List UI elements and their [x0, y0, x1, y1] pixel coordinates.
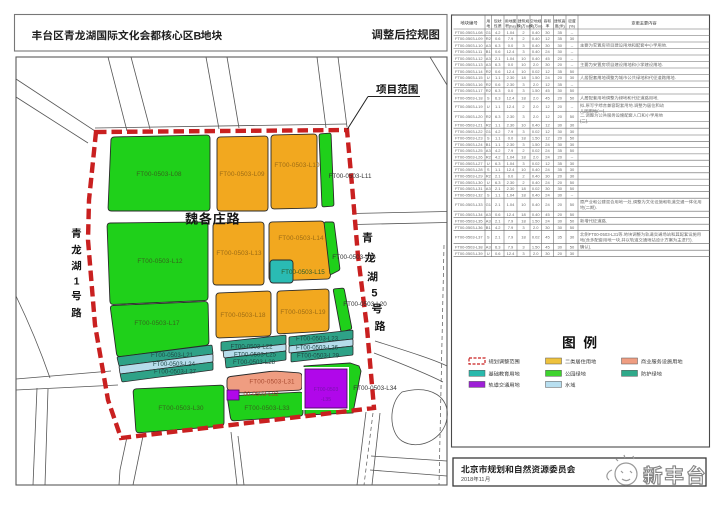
svg-text:1.04: 1.04	[507, 155, 516, 160]
svg-text:S: S	[487, 192, 490, 197]
svg-text:20: 20	[558, 75, 563, 80]
svg-text:FT00-0503-L13: FT00-0503-L13	[455, 62, 483, 67]
svg-text:30: 30	[558, 122, 563, 127]
svg-text:24: 24	[545, 75, 550, 80]
svg-text:5: 5	[371, 288, 377, 300]
svg-text:2.1: 2.1	[495, 235, 501, 240]
svg-text:30: 30	[545, 30, 550, 35]
svg-text:R2: R2	[486, 122, 492, 127]
svg-text:11: 11	[479, 477, 485, 483]
svg-text:6.3: 6.3	[495, 161, 501, 166]
svg-text:FT00-0503-L08: FT00-0503-L08	[455, 30, 483, 35]
svg-text:6.3: 6.3	[495, 95, 501, 100]
svg-text:FT00-0503-L31: FT00-0503-L31	[249, 379, 295, 386]
svg-text:FT00-0503-L08: FT00-0503-L08	[136, 171, 182, 178]
svg-text:30: 30	[558, 192, 563, 197]
svg-text:4.2: 4.2	[495, 148, 501, 153]
svg-text:35: 35	[558, 167, 563, 172]
svg-text:35: 35	[558, 36, 563, 41]
svg-text:30: 30	[545, 186, 550, 191]
svg-text:FT00-0503-L14: FT00-0503-L14	[278, 235, 324, 242]
svg-text:24: 24	[545, 202, 550, 207]
svg-text:1.1: 1.1	[495, 192, 501, 197]
svg-text:R2: R2	[486, 82, 492, 87]
svg-text:2.0: 2.0	[533, 82, 539, 87]
svg-text:24: 24	[545, 142, 550, 147]
svg-text:FT00-0503-L31: FT00-0503-L31	[589, 232, 619, 237]
svg-text:).: ).	[603, 109, 606, 114]
svg-text:1.1: 1.1	[495, 75, 501, 80]
svg-text:FT00-0503-L16: FT00-0503-L16	[455, 82, 483, 87]
svg-text:1.1: 1.1	[495, 136, 501, 141]
svg-text:30: 30	[570, 174, 575, 179]
svg-text:35: 35	[558, 161, 563, 166]
svg-text:6.3: 6.3	[495, 244, 501, 249]
svg-text:4.2: 4.2	[495, 129, 501, 134]
svg-text:18: 18	[521, 155, 526, 160]
svg-text:0.40: 0.40	[532, 174, 541, 179]
svg-text:2.0: 2.0	[533, 251, 539, 256]
svg-text:(ha): (ha)	[509, 24, 516, 28]
svg-text:12: 12	[545, 82, 550, 87]
svg-text:U: U	[487, 251, 490, 256]
svg-text:0.6: 0.6	[495, 82, 501, 87]
svg-text:45: 45	[545, 212, 550, 217]
svg-text:B1: B1	[486, 49, 492, 54]
svg-text:).: ).	[586, 118, 589, 123]
svg-text:FT00-0503-L28: FT00-0503-L28	[233, 359, 276, 366]
svg-text:00-0503-L32: 00-0503-L32	[243, 391, 279, 398]
svg-text:18: 18	[521, 218, 526, 223]
svg-text:20: 20	[558, 202, 563, 207]
svg-text:45: 45	[545, 244, 550, 249]
svg-text:2.1: 2.1	[495, 174, 501, 179]
svg-text:FT00-0503-L24: FT00-0503-L24	[153, 361, 196, 368]
svg-text:18: 18	[521, 75, 526, 80]
svg-text:30: 30	[545, 174, 550, 179]
svg-text:G1: G1	[486, 202, 492, 207]
svg-text:35: 35	[558, 69, 563, 74]
svg-text:30: 30	[545, 43, 550, 48]
svg-text:20: 20	[558, 62, 563, 67]
svg-text:FT00-0503-L12: FT00-0503-L12	[455, 56, 483, 61]
svg-text:FT00-0503-L36: FT00-0503-L36	[455, 225, 483, 230]
svg-text:24: 24	[545, 167, 550, 172]
svg-text:35: 35	[558, 82, 563, 87]
svg-text:2.1: 2.1	[495, 186, 501, 191]
svg-text:R2: R2	[486, 88, 492, 93]
svg-text:FT00-0503-L27: FT00-0503-L27	[455, 161, 483, 166]
svg-text:2.30: 2.30	[507, 82, 516, 87]
svg-text:1.04: 1.04	[507, 202, 516, 207]
svg-text:FT00-0503-L31: FT00-0503-L31	[455, 186, 483, 191]
svg-text:0.6: 0.6	[495, 36, 501, 41]
svg-text:FT00-0503-L21: FT00-0503-L21	[455, 122, 483, 127]
svg-text:12.4: 12.4	[507, 167, 516, 172]
svg-text:2.0: 2.0	[533, 62, 539, 67]
svg-text:30: 30	[570, 235, 575, 240]
svg-text:FT00-0503-L10: FT00-0503-L10	[455, 43, 483, 48]
svg-text:FT00-0503-L14: FT00-0503-L14	[455, 69, 483, 74]
svg-text:FT00-0503-L21: FT00-0503-L21	[151, 352, 194, 359]
svg-text:30: 30	[570, 75, 575, 80]
svg-text:FT00-0503-L11: FT00-0503-L11	[329, 173, 372, 180]
svg-text:FT00-0503-L34: FT00-0503-L34	[455, 212, 483, 217]
svg-text:FT00-0503-L20: FT00-0503-L20	[455, 114, 483, 119]
svg-text:30: 30	[545, 225, 550, 230]
svg-text:2.30: 2.30	[507, 75, 516, 80]
svg-text:FT00-0503-L23: FT00-0503-L23	[296, 336, 339, 343]
svg-text:FT00-0503-L17: FT00-0503-L17	[455, 88, 483, 93]
svg-text:30: 30	[570, 167, 575, 172]
svg-text:.: .	[662, 62, 663, 67]
svg-text:35: 35	[558, 235, 563, 240]
svg-text:45: 45	[545, 95, 550, 100]
svg-text:50: 50	[570, 69, 575, 74]
svg-text:10: 10	[521, 122, 526, 127]
svg-text:24: 24	[545, 218, 550, 223]
svg-text:30: 30	[558, 142, 563, 147]
svg-text:30: 30	[558, 218, 563, 223]
svg-text:FT00-0503-L39: FT00-0503-L39	[455, 251, 483, 256]
svg-text:24: 24	[545, 155, 550, 160]
svg-text:2.0: 2.0	[533, 95, 539, 100]
svg-text:0.40: 0.40	[532, 30, 541, 35]
svg-text:30: 30	[570, 122, 575, 127]
svg-text:FT00-0503-L25: FT00-0503-L25	[234, 351, 277, 358]
svg-text:12: 12	[545, 114, 550, 119]
svg-text:.: .	[620, 238, 621, 243]
svg-text:.: .	[675, 75, 676, 80]
svg-text:FT00-0503-L19: FT00-0503-L19	[455, 104, 483, 109]
svg-text:20: 20	[558, 251, 563, 256]
svg-text:R2: R2	[486, 36, 492, 41]
svg-text:0.02: 0.02	[532, 161, 541, 166]
svg-text:0.40: 0.40	[532, 212, 541, 217]
svg-text:.: .	[584, 113, 585, 118]
svg-text:2018: 2018	[461, 477, 473, 483]
svg-text:45: 45	[545, 56, 550, 61]
svg-text:7.9: 7.9	[508, 36, 514, 41]
svg-text:FT00-0503-L38: FT00-0503-L38	[455, 244, 483, 249]
svg-text:10: 10	[521, 167, 526, 172]
svg-text:0.0: 0.0	[508, 43, 514, 48]
svg-text:30: 30	[570, 251, 575, 256]
svg-text:FT00-0503-L24: FT00-0503-L24	[455, 142, 483, 147]
svg-text:B1: B1	[486, 225, 492, 230]
svg-text:S: S	[487, 136, 490, 141]
svg-text:S: S	[487, 235, 490, 240]
svg-text:50: 50	[570, 136, 575, 141]
svg-text:FT00-0503: FT00-0503	[314, 387, 339, 393]
svg-text:6.3: 6.3	[495, 180, 501, 185]
svg-text:30: 30	[570, 142, 575, 147]
svg-text:6.3: 6.3	[495, 43, 501, 48]
svg-text:G1: G1	[486, 129, 492, 134]
svg-text:U: U	[487, 161, 490, 166]
svg-text:2.0: 2.0	[533, 225, 539, 230]
svg-text:2.1: 2.1	[495, 56, 501, 61]
svg-text:50: 50	[570, 218, 575, 223]
svg-text:20: 20	[558, 104, 563, 109]
svg-text:FT00-0503-L23: FT00-0503-L23	[455, 136, 483, 141]
svg-text:FT00-0503-L27: FT00-0503-L27	[154, 369, 197, 376]
svg-text:30: 30	[570, 36, 575, 41]
svg-text:4.2: 4.2	[495, 225, 501, 230]
svg-text:12: 12	[545, 129, 550, 134]
svg-text:7.9: 7.9	[508, 225, 514, 230]
svg-text:7.9: 7.9	[508, 218, 514, 223]
svg-text:2.30: 2.30	[507, 180, 516, 185]
svg-text:-L35: -L35	[321, 397, 331, 403]
svg-text:1.50: 1.50	[532, 136, 541, 141]
svg-text:18: 18	[521, 192, 526, 197]
svg-text:1.50: 1.50	[532, 244, 541, 249]
svg-text:FT00-0503-L34: FT00-0503-L34	[353, 385, 397, 392]
svg-text:7.9: 7.9	[508, 244, 514, 249]
svg-text:R2: R2	[486, 69, 492, 74]
svg-text:A3: A3	[486, 148, 492, 153]
svg-text:1.1: 1.1	[495, 122, 501, 127]
svg-text:A3: A3	[486, 186, 492, 191]
svg-text:0.40: 0.40	[532, 56, 541, 61]
svg-text:1.1: 1.1	[495, 167, 501, 172]
svg-text:U: U	[487, 75, 490, 80]
svg-text:45: 45	[545, 88, 550, 93]
svg-text:FT00-0503-L26: FT00-0503-L26	[296, 344, 339, 351]
svg-text:50: 50	[570, 225, 575, 230]
svg-text:0.0: 0.0	[508, 88, 514, 93]
svg-text:7.9: 7.9	[508, 235, 514, 240]
svg-text:A3: A3	[486, 43, 492, 48]
svg-text:6.3: 6.3	[495, 88, 501, 93]
svg-text:50: 50	[570, 202, 575, 207]
svg-text:FT00-0503-L18: FT00-0503-L18	[455, 95, 483, 100]
svg-text:FT00-0503-L35: FT00-0503-L35	[455, 218, 483, 223]
svg-text:1.04: 1.04	[507, 30, 516, 35]
svg-text:20: 20	[558, 174, 563, 179]
svg-text:FT00-0503-L15: FT00-0503-L15	[455, 75, 483, 80]
svg-text:FT00-0503-L18: FT00-0503-L18	[220, 312, 266, 319]
svg-text:30: 30	[545, 251, 550, 256]
svg-text:20: 20	[558, 114, 563, 119]
svg-text:30: 30	[558, 88, 563, 93]
svg-text:).: ).	[594, 205, 597, 210]
svg-text:50: 50	[570, 95, 575, 100]
svg-text:FT00-0503-L32: FT00-0503-L32	[455, 192, 483, 197]
svg-text:12.4: 12.4	[507, 104, 516, 109]
svg-text:0.02: 0.02	[532, 69, 541, 74]
svg-text:2.1: 2.1	[495, 202, 501, 207]
svg-text:0.40: 0.40	[532, 122, 541, 127]
svg-text:2.0: 2.0	[533, 104, 539, 109]
svg-text:24: 24	[545, 49, 550, 54]
svg-text:S: S	[487, 167, 490, 172]
svg-text:10: 10	[521, 202, 526, 207]
svg-text:12.4: 12.4	[507, 95, 516, 100]
svg-text:2.30: 2.30	[507, 122, 516, 127]
svg-text:.: .	[657, 95, 658, 100]
svg-text:0.6: 0.6	[495, 69, 501, 74]
svg-text:24: 24	[545, 148, 550, 153]
svg-text:0.0: 0.0	[508, 62, 514, 67]
svg-text:2.30: 2.30	[507, 114, 516, 119]
svg-text:.: .	[633, 103, 634, 108]
svg-text:6.3: 6.3	[495, 62, 501, 67]
svg-text:FT00-0503-L09: FT00-0503-L09	[219, 171, 265, 178]
svg-text:1.1: 1.1	[495, 104, 501, 109]
svg-text:12: 12	[545, 69, 550, 74]
svg-text:18: 18	[521, 186, 526, 191]
svg-text:50: 50	[570, 114, 575, 119]
svg-text:FT00-0503-L26: FT00-0503-L26	[455, 155, 483, 160]
svg-text:30: 30	[558, 49, 563, 54]
svg-text:4.2: 4.2	[495, 30, 501, 35]
svg-text:0.40: 0.40	[532, 36, 541, 41]
svg-text:0.0: 0.0	[508, 136, 514, 141]
svg-text:FT00-0503-L30: FT00-0503-L30	[158, 405, 204, 412]
svg-text:FT00-0503-L29: FT00-0503-L29	[297, 352, 340, 359]
svg-text:20: 20	[558, 56, 563, 61]
svg-text:FT00-0503-L22: FT00-0503-L22	[455, 129, 483, 134]
svg-text:30: 30	[558, 43, 563, 48]
svg-text:1.50: 1.50	[532, 75, 541, 80]
svg-text:0.6: 0.6	[495, 251, 501, 256]
svg-text:B1: B1	[486, 142, 492, 147]
svg-text:FT00-0503-L29: FT00-0503-L29	[455, 174, 483, 179]
svg-text:FT00-0503-L25: FT00-0503-L25	[455, 148, 483, 153]
svg-text:10: 10	[521, 56, 526, 61]
svg-text:50: 50	[570, 88, 575, 93]
svg-text:18: 18	[521, 212, 526, 217]
svg-text:50: 50	[570, 180, 575, 185]
svg-text:FT00-0503-L33: FT00-0503-L33	[455, 202, 483, 207]
svg-text:0.40: 0.40	[532, 192, 541, 197]
svg-text:).: ).	[690, 238, 693, 243]
svg-text:(%): (%)	[569, 24, 576, 28]
svg-text:0.0: 0.0	[508, 174, 514, 179]
svg-text:30: 30	[570, 129, 575, 134]
svg-text:35: 35	[558, 30, 563, 35]
svg-text:0.02: 0.02	[532, 148, 541, 153]
svg-text:30: 30	[558, 129, 563, 134]
svg-text:A3: A3	[486, 56, 492, 61]
svg-text:m): m)	[538, 24, 543, 28]
svg-text:35: 35	[558, 148, 563, 153]
svg-text:1: 1	[74, 276, 80, 288]
svg-text:30: 30	[570, 161, 575, 166]
svg-text:A3: A3	[486, 244, 492, 249]
svg-text:FT00-0503-L19: FT00-0503-L19	[280, 309, 326, 316]
svg-text:U: U	[487, 180, 490, 185]
svg-text:FT00-0503-L28: FT00-0503-L28	[455, 167, 483, 172]
svg-text:12: 12	[545, 36, 550, 41]
svg-text:12.4: 12.4	[507, 49, 516, 54]
svg-text:20: 20	[558, 95, 563, 100]
svg-text:6.3: 6.3	[495, 114, 501, 119]
svg-text:18: 18	[521, 235, 526, 240]
svg-text:24: 24	[545, 192, 550, 197]
svg-text:.: .	[623, 232, 624, 237]
svg-text:4.2: 4.2	[495, 155, 501, 160]
svg-text:30: 30	[558, 225, 563, 230]
svg-text:2.0: 2.0	[533, 155, 539, 160]
svg-text:50: 50	[570, 212, 575, 217]
svg-text:2.30: 2.30	[507, 186, 516, 191]
svg-text:.: .	[584, 103, 585, 108]
svg-text:20: 20	[558, 136, 563, 141]
svg-text:30: 30	[558, 244, 563, 249]
svg-text:20: 20	[558, 212, 563, 217]
svg-text:0.40: 0.40	[532, 167, 541, 172]
svg-text:2.1: 2.1	[495, 218, 501, 223]
svg-text:30: 30	[558, 186, 563, 191]
svg-text:20: 20	[558, 180, 563, 185]
svg-text:FT00-0503-L11: FT00-0503-L11	[455, 49, 483, 54]
svg-text:FT00-0503-L33: FT00-0503-L33	[244, 405, 290, 412]
svg-text:U: U	[487, 104, 490, 109]
svg-text:18: 18	[521, 95, 526, 100]
svg-text:FT00-0503-L15: FT00-0503-L15	[281, 269, 325, 276]
svg-text:1.50: 1.50	[532, 88, 541, 93]
svg-text:0.02: 0.02	[532, 235, 541, 240]
svg-text:.: .	[632, 199, 633, 204]
svg-text:10: 10	[521, 69, 526, 74]
svg-text:12: 12	[545, 136, 550, 141]
svg-text:FT00-0503-L09: FT00-0503-L09	[455, 36, 483, 41]
svg-text:12: 12	[545, 161, 550, 166]
svg-text:2.0: 2.0	[533, 114, 539, 119]
svg-text:0.02: 0.02	[532, 129, 541, 134]
svg-text:FT00-0503-L10: FT00-0503-L10	[274, 162, 320, 169]
svg-text:12.4: 12.4	[507, 69, 516, 74]
svg-text:1.1: 1.1	[495, 142, 501, 147]
svg-text:0.40: 0.40	[532, 180, 541, 185]
svg-text:).: ).	[589, 244, 592, 249]
svg-text:12.4: 12.4	[507, 212, 516, 217]
svg-text:FT00-0503-L17: FT00-0503-L17	[134, 320, 180, 327]
svg-text:R2: R2	[486, 114, 492, 119]
svg-text:1.50: 1.50	[532, 142, 541, 147]
svg-text:7.9: 7.9	[508, 148, 514, 153]
svg-text:G1: G1	[486, 30, 492, 35]
svg-text:1.04: 1.04	[507, 161, 516, 166]
svg-text:S: S	[487, 95, 490, 100]
svg-text:0.6: 0.6	[495, 49, 501, 54]
svg-text:.: .	[606, 218, 607, 223]
svg-text:12.4: 12.4	[507, 251, 516, 256]
svg-text:50: 50	[570, 244, 575, 249]
svg-text:0.40: 0.40	[532, 202, 541, 207]
svg-text:10: 10	[521, 62, 526, 67]
svg-text:7.9: 7.9	[508, 129, 514, 134]
svg-text:0.40: 0.40	[532, 43, 541, 48]
svg-text:A3: A3	[486, 62, 492, 67]
svg-text:FT00-0503-L37: FT00-0503-L37	[455, 235, 483, 240]
svg-text:B: B	[194, 30, 202, 42]
svg-text:1.50: 1.50	[532, 218, 541, 223]
svg-text:FT00-0503-L13: FT00-0503-L13	[216, 250, 262, 257]
svg-text:2.30: 2.30	[507, 142, 516, 147]
svg-text:12: 12	[545, 104, 550, 109]
svg-text:FT00-0503-L30: FT00-0503-L30	[455, 180, 483, 185]
svg-text:50: 50	[570, 148, 575, 153]
svg-text:0.40: 0.40	[532, 49, 541, 54]
svg-text:45: 45	[545, 235, 550, 240]
svg-text:R2: R2	[486, 174, 492, 179]
svg-text:12: 12	[545, 122, 550, 127]
svg-text:.: .	[666, 43, 667, 48]
